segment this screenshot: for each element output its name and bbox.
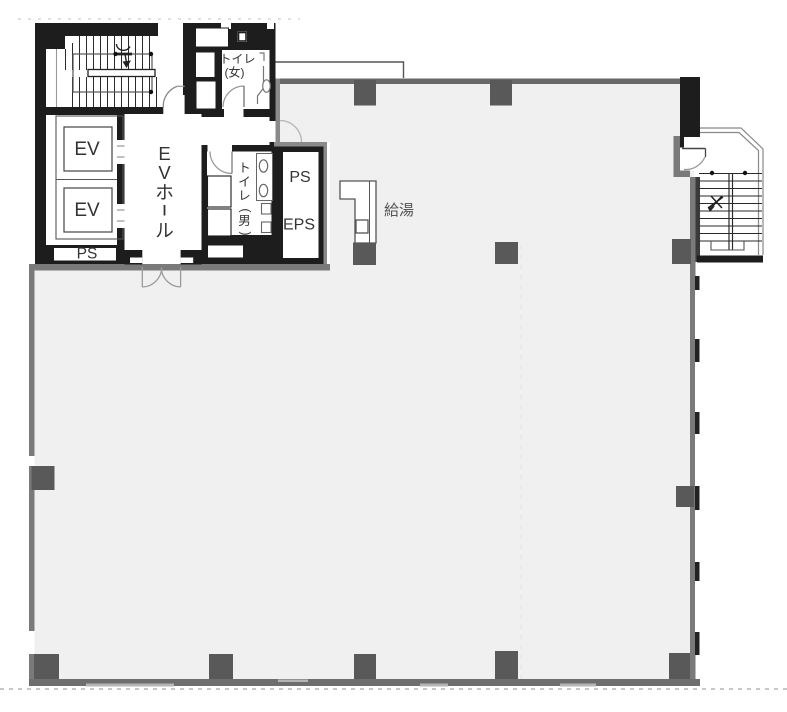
svg-text:イ: イ <box>238 175 251 189</box>
svg-text:V: V <box>158 162 171 183</box>
svg-text:給湯: 給湯 <box>384 202 414 219</box>
svg-text:PS: PS <box>77 246 98 263</box>
svg-text:(女): (女) <box>225 65 245 80</box>
svg-text:ホ: ホ <box>155 182 174 203</box>
svg-text:PS: PS <box>289 169 310 186</box>
svg-text:男: 男 <box>238 214 251 228</box>
svg-text:トイレ: トイレ <box>219 52 255 66</box>
svg-text:レ: レ <box>238 189 251 203</box>
svg-text:): ) <box>239 231 253 235</box>
svg-text:ル: ル <box>155 220 174 241</box>
svg-text:EPS: EPS <box>283 217 315 234</box>
svg-text:E: E <box>158 143 170 164</box>
svg-text:ト: ト <box>238 161 251 175</box>
svg-text:EV: EV <box>74 139 100 160</box>
svg-text:EV: EV <box>74 200 100 221</box>
